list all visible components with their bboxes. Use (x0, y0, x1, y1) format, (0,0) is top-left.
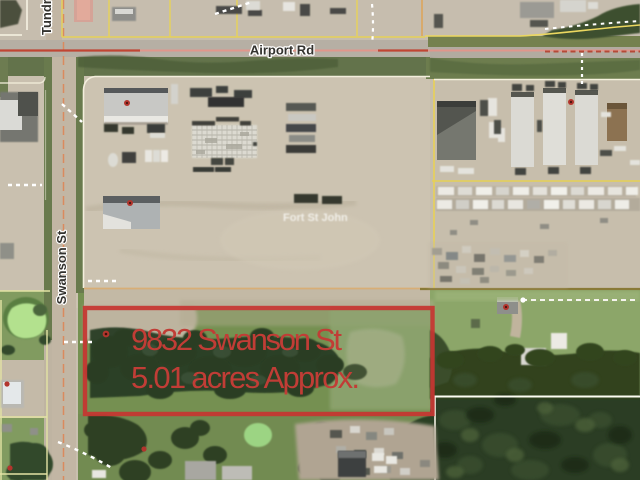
svg-text:Fort St John: Fort St John (283, 212, 348, 224)
svg-text:Tundra St: Tundra St (39, 0, 54, 35)
svg-text:Swanson St: Swanson St (54, 230, 69, 304)
svg-text:9832 Swanson St: 9832 Swanson St (131, 322, 342, 357)
svg-text:5.01 acres Approx.: 5.01 acres Approx. (131, 360, 360, 395)
svg-text:Airport Rd: Airport Rd (250, 43, 314, 58)
